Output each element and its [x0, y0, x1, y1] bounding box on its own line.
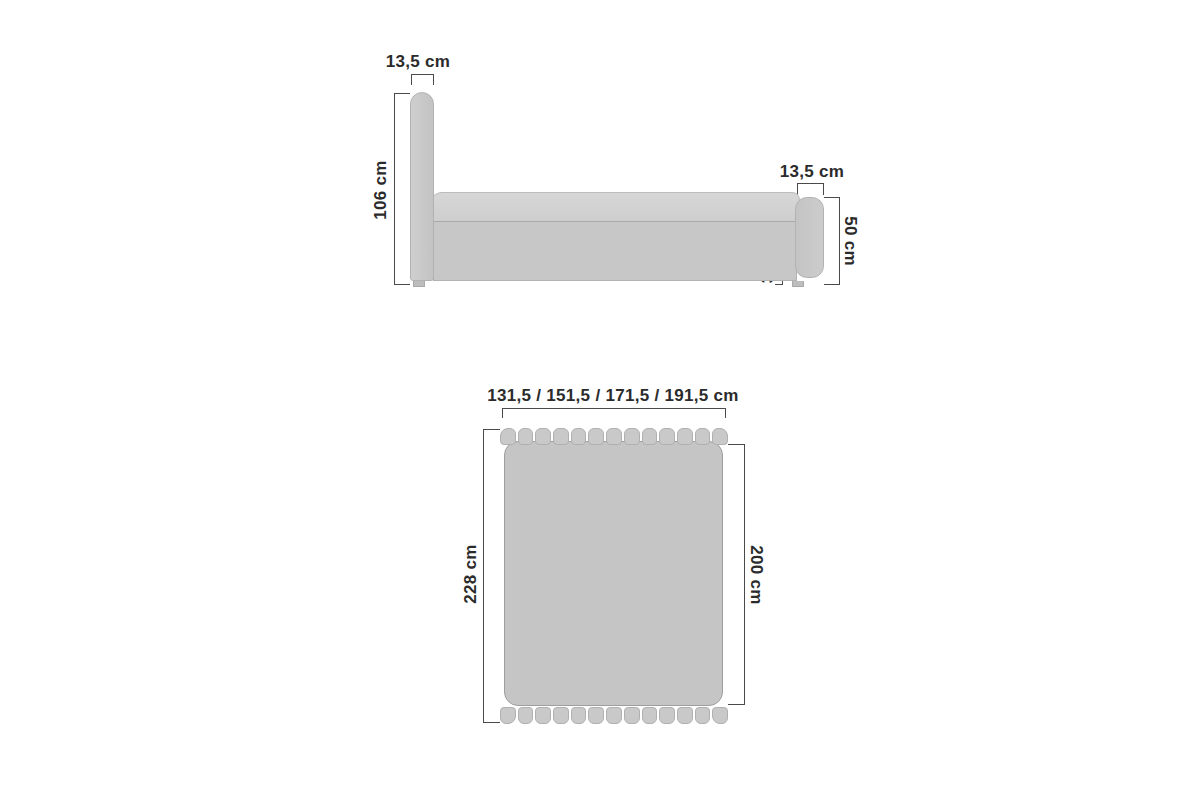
footboard-height-bracket	[824, 197, 840, 285]
footboard-channel-segment	[518, 707, 534, 724]
headboard-channel-segment	[535, 428, 551, 445]
headboard-height-label: 106 cm	[371, 150, 391, 230]
bed-dimensions-diagram: 13,5 cm 106 cm 13,5 cm 33,5 cm 50 cm 131…	[0, 0, 1200, 800]
footboard-channel-segment	[677, 707, 693, 724]
headboard-channel-segment	[500, 428, 516, 445]
bed-base-side-shape	[433, 221, 797, 281]
mattress-top-shape	[504, 441, 723, 706]
footboard-channel-segment	[535, 707, 551, 724]
headboard-channel-segment	[571, 428, 587, 445]
footboard-channel-segment	[695, 707, 711, 724]
headboard-channel-segment	[677, 428, 693, 445]
headboard-channel-segment	[588, 428, 604, 445]
footboard-side-shape	[795, 197, 824, 278]
headboard-channel-segment	[624, 428, 640, 445]
rear-leg-shape	[792, 281, 804, 287]
overall-length-label: 228 cm	[461, 534, 479, 614]
headboard-channel-segment	[659, 428, 675, 445]
footboard-channel-segment	[500, 707, 516, 724]
headboard-top-shape	[500, 428, 728, 445]
overall-length-bracket	[483, 429, 500, 723]
overall-width-label: 131,5 / 151,5 / 171,5 / 191,5 cm	[463, 386, 763, 406]
headboard-width-bracket	[411, 74, 434, 85]
footboard-channel-segment	[588, 707, 604, 724]
headboard-channel-segment	[695, 428, 711, 445]
overall-width-bracket	[502, 408, 726, 418]
footboard-channel-segment	[712, 707, 728, 724]
headboard-height-bracket	[394, 93, 410, 285]
headboard-channel-segment	[553, 428, 569, 445]
footboard-width-label: 13,5 cm	[762, 162, 862, 182]
footboard-top-shape	[500, 707, 728, 724]
footboard-channel-segment	[553, 707, 569, 724]
footboard-channel-segment	[659, 707, 675, 724]
footboard-channel-segment	[624, 707, 640, 724]
mattress-length-label: 200 cm	[748, 535, 766, 615]
headboard-channel-segment	[642, 428, 658, 445]
footboard-height-label: 50 cm	[844, 211, 860, 271]
front-leg-shape	[413, 281, 425, 287]
headboard-width-label: 13,5 cm	[358, 52, 478, 72]
footboard-channel-segment	[642, 707, 658, 724]
footboard-channel-segment	[571, 707, 587, 724]
headboard-channel-segment	[606, 428, 622, 445]
mattress-length-bracket	[728, 444, 745, 705]
footboard-channel-segment	[606, 707, 622, 724]
footboard-width-bracket	[797, 183, 824, 195]
headboard-side-shape	[410, 92, 434, 281]
headboard-channel-segment	[712, 428, 728, 445]
mattress-side-shape	[430, 192, 800, 222]
headboard-channel-segment	[518, 428, 534, 445]
